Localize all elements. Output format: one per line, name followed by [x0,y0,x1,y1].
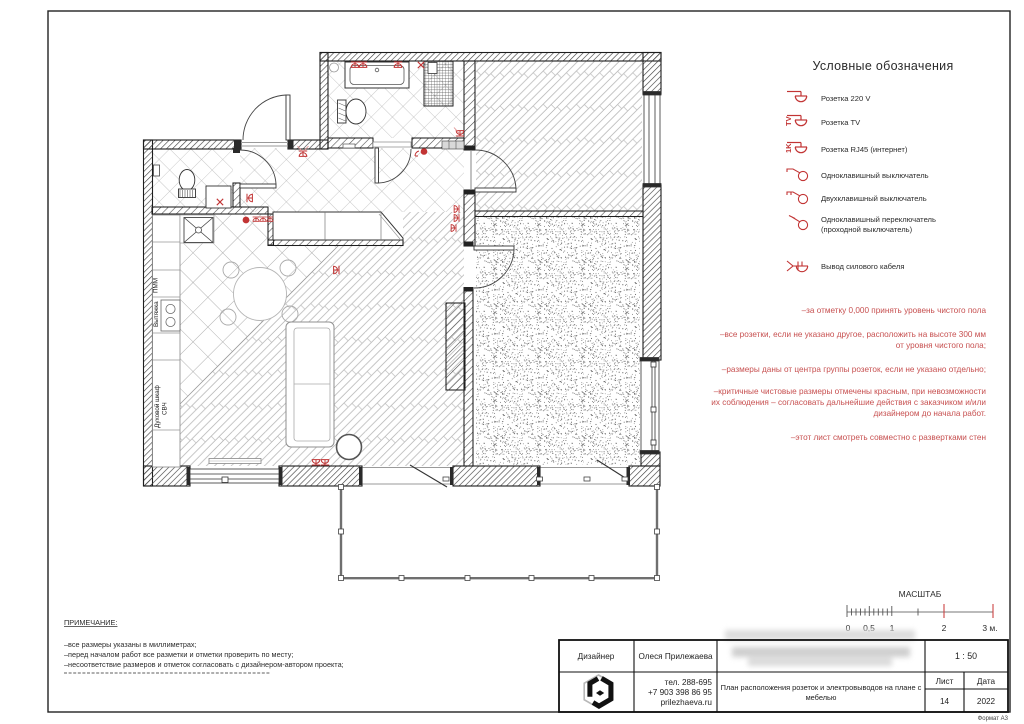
svg-text:Вытяжка: Вытяжка [153,301,160,327]
svg-text:2022: 2022 [977,697,996,706]
svg-text:Одноклавишный выключатель: Одноклавишный выключатель [821,171,929,180]
svg-text:Одноклавишный переключатель: Одноклавишный переключатель [821,215,936,224]
svg-text:Дизайнер: Дизайнер [578,652,615,661]
svg-text:–критичные чистовые размеры от: –критичные чистовые размеры отмечены кра… [714,387,986,396]
svg-text:–все размеры указаны в миллиме: –все размеры указаны в миллиметрах; [64,640,197,649]
svg-text:тел. 288-695: тел. 288-695 [665,678,713,687]
svg-text:–перед началом работ все разме: –перед началом работ все разметки и отме… [64,650,293,659]
svg-text:Розетка 220 V: Розетка 220 V [821,94,871,103]
svg-text:МАСШТАБ: МАСШТАБ [899,589,942,599]
svg-text:Двухклавишный выключатель: Двухклавишный выключатель [821,194,927,203]
svg-text:Олеся Прилежаева: Олеся Прилежаева [638,652,713,661]
svg-text:мебелью: мебелью [806,693,837,702]
svg-text:Формат А3: Формат А3 [978,716,1009,722]
svg-text:План расположения розеток и эл: План расположения розеток и электровывод… [721,683,922,692]
svg-text:–за отметку 0,000 принять уров: –за отметку 0,000 принять уровень чистог… [802,306,987,315]
svg-text:+7 903 398 86 95: +7 903 398 86 95 [648,688,712,697]
svg-text:(проходной выключатель): (проходной выключатель) [821,225,913,234]
svg-text:их соблюдения – согласовать да: их соблюдения – согласовать дальнейшие д… [711,398,986,407]
svg-text:дизайнером до начала работ.: дизайнером до начала работ. [873,409,986,418]
svg-text:Вывод силового кабеля: Вывод силового кабеля [821,262,904,271]
svg-text:ПРИМЕЧАНИЕ:: ПРИМЕЧАНИЕ: [64,618,117,627]
svg-text:1 : 50: 1 : 50 [955,651,977,661]
svg-text:Розетка TV: Розетка TV [821,118,861,127]
svg-text:Условные обозначения: Условные обозначения [812,59,953,73]
svg-text:1K: 1K [784,143,793,153]
svg-text:14: 14 [940,697,950,706]
svg-text:3 м.: 3 м. [982,623,997,633]
svg-text:2: 2 [942,623,947,633]
svg-text:Лист: Лист [936,677,954,686]
svg-text:prilezhaeva.ru: prilezhaeva.ru [661,698,713,707]
svg-text:от уровня чистого пола;: от уровня чистого пола; [896,341,986,350]
svg-text:Духовой шкаф: Духовой шкаф [153,385,161,428]
svg-text:СВЧ: СВЧ [162,402,169,415]
svg-text:–этот лист смотреть совместно: –этот лист смотреть совместно с развертк… [791,433,986,442]
svg-text:ПММ: ПММ [153,278,160,293]
svg-text:TV: TV [784,116,793,126]
svg-text:–все розетки, если не указано: –все розетки, если не указано другое, ра… [720,330,986,339]
svg-text:–размеры даны от центра группы: –размеры даны от центра группы розеток, … [722,365,986,374]
svg-text:Розетка RJ45 (интернет): Розетка RJ45 (интернет) [821,145,908,154]
svg-text:Дата: Дата [977,677,996,686]
svg-text:–несоответствие размеров и отм: –несоответствие размеров и отметок согла… [64,660,344,669]
